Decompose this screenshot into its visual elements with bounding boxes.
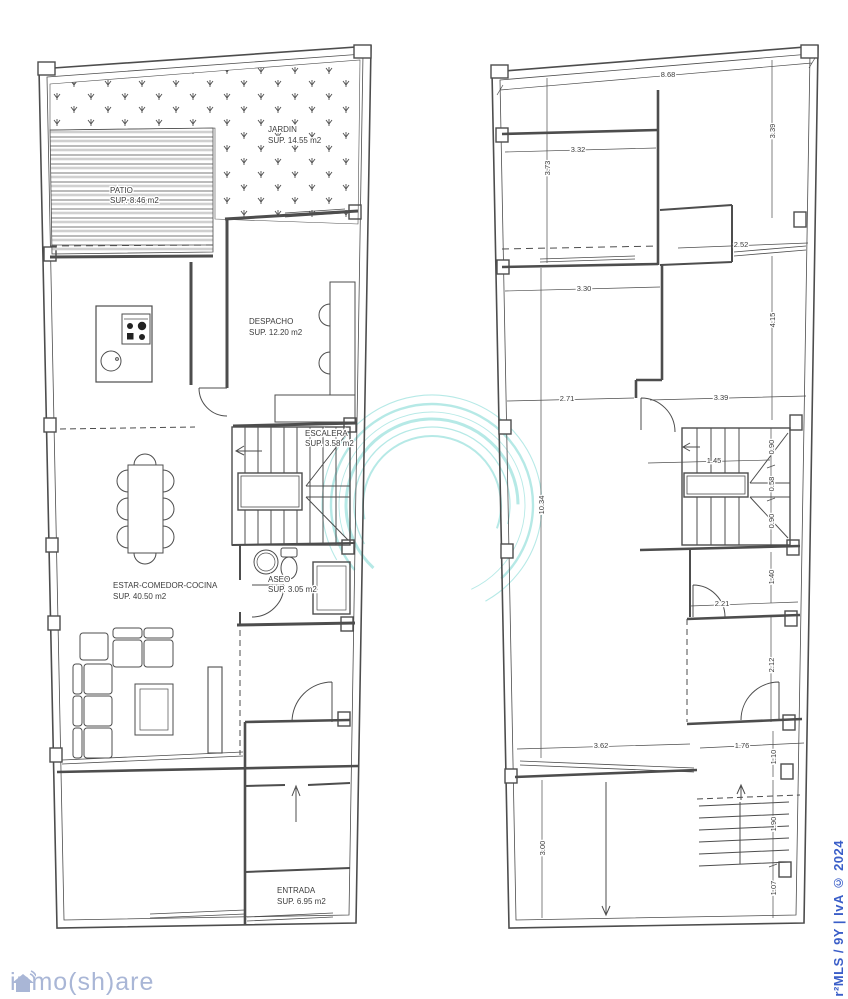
dim-330: 3.30 [577,284,592,293]
house-icon [10,970,36,996]
svg-text:SUP. 6.95 m2: SUP. 6.95 m2 [277,897,326,906]
svg-text:DESPACHO: DESPACHO [249,317,293,326]
dim-145: 1.45 [707,456,722,465]
svg-text:SUP. 40.50 m2: SUP. 40.50 m2 [113,592,167,601]
dim-176: 1.76 [735,741,750,750]
dim-1034: 10.34 [537,496,546,515]
dim-212: 2.12 [767,658,776,673]
dim-252: 2.52 [734,240,749,249]
svg-text:ENTRADA: ENTRADA [277,886,316,895]
dim-090a: 0.90 [767,440,776,455]
room-label-estar: ESTAR-COMEDOR-COCINA SUP. 40.50 m2 [113,581,218,601]
dim-090b: 0.90 [767,514,776,529]
dim-300: 3.00 [538,841,547,856]
brand-watermark: inmo(sh)are [10,970,154,995]
svg-text:SUP. 8.46 m2: SUP. 8.46 m2 [110,196,159,205]
kitchen-island [96,306,152,382]
svg-text:SUP. 3.58 m2: SUP. 3.58 m2 [305,439,354,448]
svg-text:SUP. 12.20 m2: SUP. 12.20 m2 [249,328,303,337]
dim-339b: 3.39 [714,393,729,402]
room-label-escalera: ESCALERA SUP. 3.58 m2 [305,429,354,448]
dim-415: 4.15 [768,313,777,328]
floor-plan-drawing: PATIO SUP. 8.46 m2 JARDIN SUP. 14.55 m2 … [0,0,848,999]
tv-cabinet [208,667,222,753]
dim-110: 1.10 [769,750,778,765]
dim-058: 0.58 [767,477,776,492]
svg-text:SUP. 14.55 m2: SUP. 14.55 m2 [268,136,322,145]
room-label-despacho: DESPACHO SUP. 12.20 m2 [249,317,303,337]
dim-339a: 3.39 [768,124,777,139]
dining-table [117,454,174,564]
dim-362: 3.62 [594,741,609,750]
coffee-table [135,684,173,735]
stairs-entry [697,785,800,866]
dim-190: 1.90 [769,817,778,832]
svg-text:ESTAR-COMEDOR-COCINA: ESTAR-COMEDOR-COCINA [113,581,218,590]
svg-text:ASEO: ASEO [268,575,290,584]
dim-top-width: 8.68 [661,70,676,79]
dim-373: 3.73 [543,161,552,176]
ground-floor-plan [38,45,371,928]
sink-icon [254,550,278,574]
svg-text:SUP. 3.05 m2: SUP. 3.05 m2 [268,585,317,594]
dim-107: 1.07 [769,881,778,896]
svg-text:PATIO: PATIO [110,186,133,195]
room-label-entrada: ENTRADA SUP. 6.95 m2 [277,886,326,906]
copyright-credit: r²MLS / 9Y | IvA © 2024 [831,840,846,997]
dim-332: 3.32 [571,145,586,154]
desk [275,282,355,422]
shower-icon [313,562,350,614]
floor-plan-sheet: PATIO SUP. 8.46 m2 JARDIN SUP. 14.55 m2 … [0,0,848,999]
svg-text:JARDIN: JARDIN [268,125,297,134]
dim-140: 1.40 [767,570,776,585]
sofa-set [73,628,173,758]
dim-271: 2.71 [560,394,575,403]
dim-221: 2.21 [715,599,730,608]
svg-text:ESCALERA: ESCALERA [305,429,348,438]
